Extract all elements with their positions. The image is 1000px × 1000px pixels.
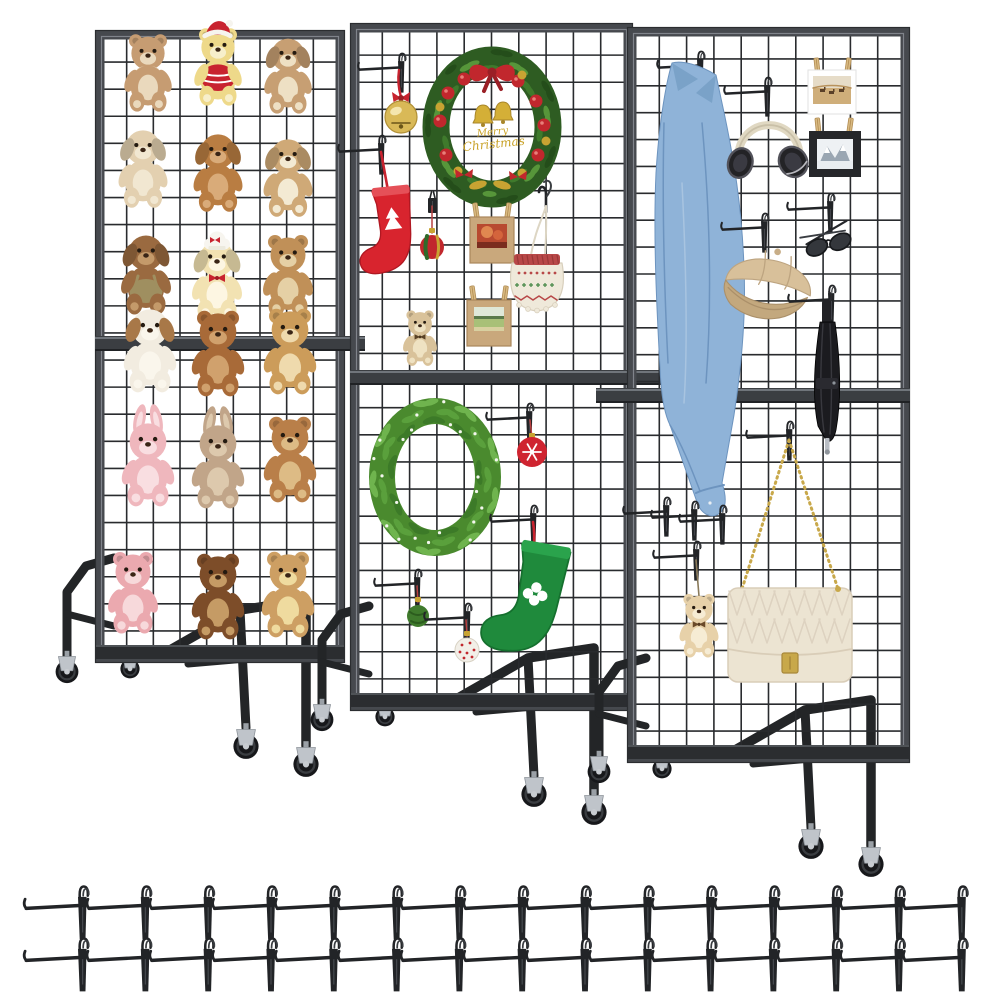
bottom-bar <box>628 745 909 759</box>
christmas-wreath: MerryChristmas <box>425 49 558 205</box>
middle-crossbar <box>350 370 703 385</box>
scene-svg: MerryChristmas <box>0 0 1000 1000</box>
bottom-bar <box>351 693 632 707</box>
middle-crossbar <box>596 388 910 403</box>
product-photo-grid-display-stands: MerryChristmas <box>0 0 1000 1000</box>
bottom-bar <box>96 645 344 659</box>
